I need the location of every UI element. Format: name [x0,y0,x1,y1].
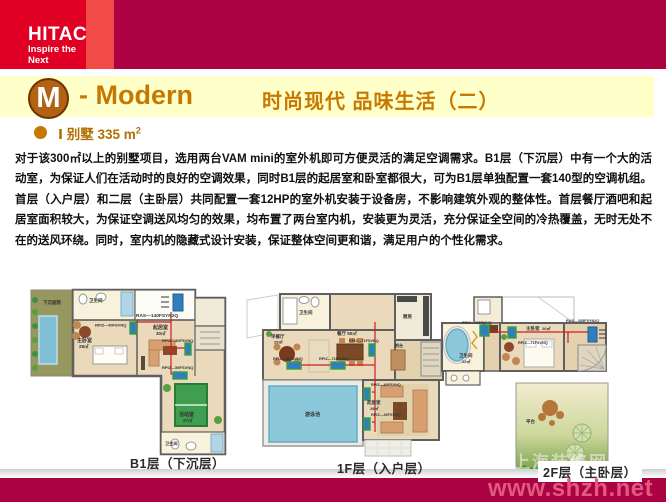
slide-canvas: HITACHI Inspire the Next M - Modern 时尚现代… [0,0,666,502]
indoor-unit-icon [331,362,345,369]
room-label-living: 起居室 [366,399,381,406]
outdoor-unit-icon [588,327,597,342]
indoor-unit-label: RPIZ—40FSVNQ [371,383,401,387]
room-label-bath: 卫生间 [299,309,313,316]
title-chinese: 时尚现代 品味生活（二） [262,85,500,114]
indoor-unit-icon [173,372,187,379]
hitachi-tagline: Inspire the Next [28,44,86,66]
header-bar: HITACHI Inspire the Next [0,0,666,69]
indoor-unit-icon [508,327,516,338]
caption-1f: 1F层（入户层） [337,458,431,477]
indoor-unit-icon [185,343,191,355]
room-label-bar: 吧台 [395,342,403,348]
b1-courtyard: 下沉庭院 [31,290,73,376]
indoor-unit-label: RPIZ—40FSVNQ [162,338,193,343]
indoor-unit-label: RPIZ—40FSVNQ [462,321,492,325]
indoor-unit-label: RPIZ—71FSVNQ [319,357,349,361]
hitachi-logo-block: HITACHI Inspire the Next [0,0,86,69]
room-label-bedroom: 主卧室 [77,337,92,344]
floorplan-b1: 下沉庭院 [15,288,230,456]
room-area-breakfast: 25㎡ [274,339,282,345]
m-badge-icon: M [28,78,69,119]
indoor-unit-label: RPIZ—40FSVNQ [95,323,126,328]
title-english: - Modern [79,80,193,111]
room-area-bedroom: 26㎡ [542,325,550,331]
body-paragraph: 对于该300㎡以上的别墅项目，选用两台VAM mini的室外机即可方便灵活的满足… [15,149,652,251]
indoor-unit-icon [130,322,136,334]
bullet-icon [34,126,47,139]
outdoor-unit-label: RAS—335FSYN2Q [566,319,599,323]
room-area-living: 28㎡ [370,405,378,411]
room-label-bath-bottom: 卫生间 [165,440,178,447]
room-label-bedroom: 主卧室 [526,325,540,332]
indoor-unit-label: RPIZ—40FSVNQ [371,413,401,417]
room-label-activity: 活动室 [179,411,194,418]
indoor-unit-icon [364,418,370,430]
indoor-unit-label: RPIZ—56FSVNQ [162,365,193,370]
room-label-pool: 游泳池 [305,411,320,418]
room-label-kitchen: 厨房 [403,313,412,320]
room-label-courtyard: 下沉庭院 [43,299,61,306]
indoor-unit-icon [364,388,370,400]
section-title-text: Ⅰ 别墅 335 m [58,127,136,142]
section-title-sup: 2 [136,126,141,136]
watermark-url: www.shzh.net [488,475,653,502]
room-label-bath: 卫生间 [459,352,473,359]
caption-b1: B1层（下沉层） [130,453,225,472]
room-label-terrace: 平台 [526,418,535,425]
room-area-bath: 22㎡ [462,358,470,364]
floorplan-1f: 卫生间 厨房 早餐厅 25㎡ 餐厅 50㎡ 吧台 RPIZ—56FSVNQ RP… [245,292,445,460]
room-label-dining: 餐厅 50㎡ [336,330,357,337]
section-title: Ⅰ 别墅 335 m2 [58,123,141,143]
indoor-unit-label: RPIZ—71FSVNQ [349,339,379,343]
room-area-activity: 27㎡ [183,417,193,423]
header-accent-strip [86,0,114,69]
outdoor-unit-icon [173,294,183,311]
outdoor-unit-label: RAS—140FSYN2Q [136,313,178,319]
indoor-unit-icon [369,344,375,356]
room-area-bedroom: 28㎡ [79,343,89,349]
indoor-unit-icon [287,362,301,369]
indoor-unit-label: RPIZ—71FSVNQ [518,341,548,345]
indoor-unit-icon [480,325,489,336]
room-area-living: 30㎡ [156,330,166,336]
room-label-living: 起居室 [152,324,168,331]
indoor-unit-label: RPIZ—56FSVNQ [273,357,303,361]
room-label-bath-top: 卫生间 [89,297,103,304]
